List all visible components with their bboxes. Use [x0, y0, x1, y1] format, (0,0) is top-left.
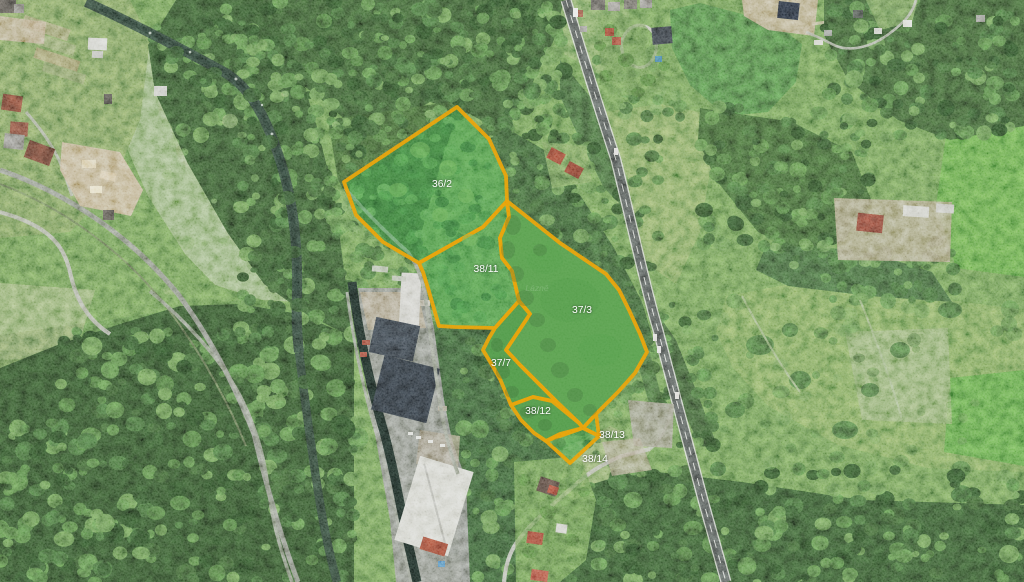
svg-text:37/3: 37/3	[572, 305, 592, 316]
svg-text:37/7: 37/7	[491, 358, 511, 369]
svg-text:38/12: 38/12	[525, 406, 551, 417]
svg-text:38/11: 38/11	[473, 264, 498, 275]
svg-text:38/14: 38/14	[582, 454, 608, 465]
svg-text:38/13: 38/13	[599, 430, 625, 441]
svg-text:Lázně: Lázně	[525, 283, 548, 293]
svg-text:36/2: 36/2	[432, 179, 452, 190]
